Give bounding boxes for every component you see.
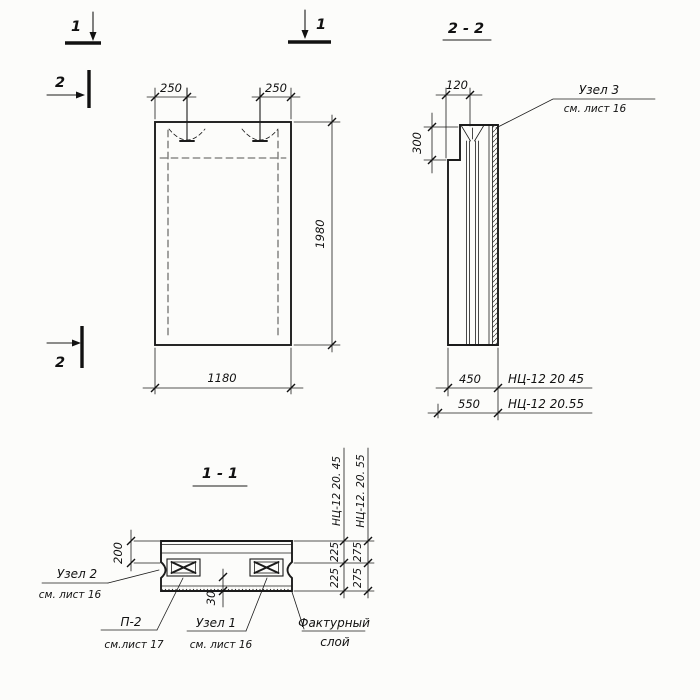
plane-label: 1 [316,17,326,33]
section-mark-1-left: 1 [65,12,101,43]
arrow-right-icon [72,340,81,347]
dim-text: 550 [458,397,480,411]
callout-text: Узел 3 [579,83,619,97]
dim-200: 200 [111,530,160,571]
keyway-left [167,559,200,576]
dim-text: 275 [352,542,364,562]
facing-layer-hatch [493,126,498,345]
dim-text: 275 [352,568,364,588]
section-1-1: 1 - 1 200 [39,448,374,651]
joint-groove [462,126,484,344]
plane-label: 2 [55,355,65,371]
dim-text: 120 [446,78,468,92]
dim-text: 225 [329,568,341,588]
dim-300: 300 [410,113,458,173]
lifting-loop-right [242,88,278,141]
section-mark-2-bottom: 2 [47,326,82,371]
lifting-loop-left [169,88,205,141]
callout-ref: см. лист 16 [39,589,102,601]
arrow-down-icon [90,32,97,41]
callout-node3: Узел 3 см. лист 16 [496,83,655,128]
dim-text: 200 [111,542,125,564]
panel-outline [155,122,291,345]
arrow-right-icon [76,92,85,99]
drawing-sheet: 1 1 2 2 [0,0,700,700]
panel-mark-vertical: НЦ-12. 20. 55 [355,454,367,528]
section-title: 2 - 2 [448,21,484,37]
dim-1180: 1180 [143,348,303,394]
callout-node2: Узел 2 см. лист 16 [39,567,159,601]
dim-1980: 1980 [294,115,340,352]
dim-text: 1180 [207,371,236,385]
panel-profile [448,125,498,345]
arrow-down-icon [302,30,309,39]
dim-text: 30 [204,591,218,606]
front-view: 250 250 1980 1180 [143,81,340,394]
callout-text: Узел 2 [57,567,97,581]
dim-550: 550 НЦ-12 20.55 [428,397,592,418]
callout-text: Узел 1 [196,616,236,630]
callout-facing-layer: Фактурный слой [292,592,370,649]
section-mark-1-right: 1 [288,10,331,42]
callout-ref: см. лист 16 [564,103,627,115]
keyway-right [250,559,283,576]
section-2-2: 2 - 2 120 [410,21,655,420]
section-title: 1 - 1 [202,466,238,482]
callout-ref: см.лист 17 [104,639,163,651]
plane-label: 2 [55,75,65,91]
dim-text: 250 [160,81,182,95]
dim-text: 450 [459,372,481,386]
panel-mark-vertical: НЦ-12 20. 45 [331,456,343,526]
dim-250-left: 250 [147,81,196,119]
callout-ref: см. лист 16 [190,639,253,651]
dim-text: 250 [265,81,287,95]
dim-text: 225 [329,542,341,562]
callout-text: П-2 [121,615,142,629]
dim-250-right: 250 [252,81,300,119]
panel-drawing: 1 1 2 2 [0,0,700,700]
thickness-dims: 225 225 275 275 НЦ-12 20. 45 НЦ-12. 20. … [294,448,374,598]
panel-mark: НЦ-12 20 45 [508,372,584,386]
dim-text: 1980 [313,219,327,248]
plane-label: 1 [71,19,81,35]
panel-mark: НЦ-12 20.55 [508,397,584,411]
callout-text: Фактурный [298,616,370,630]
callout-text: слой [320,635,350,649]
section-mark-2-top: 2 [47,70,89,108]
dim-text: 300 [410,132,424,154]
